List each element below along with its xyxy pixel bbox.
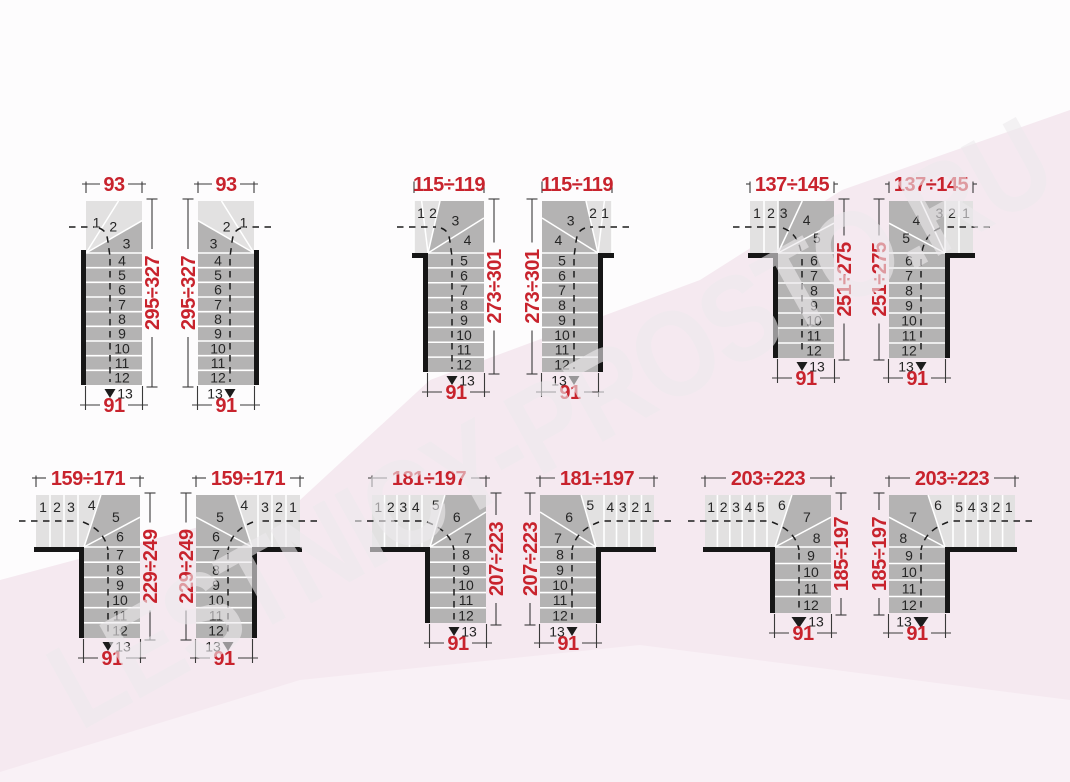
step-number: 3: [210, 236, 218, 252]
dim-width-label: 93: [215, 174, 237, 196]
step-number: 6: [460, 267, 468, 283]
step-number: 5: [214, 267, 222, 283]
step-number: 4: [214, 252, 222, 268]
dim-width-label: 137÷145: [755, 174, 830, 196]
stair-diagrams-canvas: 93295÷327911234567891011121393295÷327911…: [0, 0, 1070, 782]
dim-height-label: 273÷301: [484, 249, 506, 324]
step-number: 3: [567, 212, 575, 228]
dim-height-label: 295÷327: [142, 256, 164, 331]
step-number-last: 13: [207, 386, 223, 402]
step-number: 6: [558, 267, 566, 283]
step-number: 12: [552, 607, 568, 623]
step-number: 9: [558, 312, 566, 328]
step-number: 4: [968, 499, 976, 515]
step-number: 8: [460, 297, 468, 313]
dim-height-label: 185÷197: [869, 517, 891, 592]
step-number: 8: [556, 547, 564, 563]
step-number: 10: [901, 564, 917, 580]
step-number: 2: [223, 219, 231, 235]
step-number: 8: [214, 311, 222, 327]
step-number: 4: [240, 497, 248, 513]
step-number: 7: [558, 282, 566, 298]
step-number: 5: [757, 499, 765, 515]
step-number: 9: [462, 562, 470, 578]
step-number: 5: [112, 509, 120, 525]
step-number: 11: [211, 355, 226, 371]
step-number: 9: [460, 312, 468, 328]
step-number-last: 13: [461, 624, 477, 640]
step-number: 8: [558, 297, 566, 313]
step-number: 3: [452, 212, 460, 228]
step-number: 6: [118, 282, 126, 298]
dim-width-label: 203÷223: [731, 468, 806, 490]
step-number: 11: [804, 580, 819, 596]
step-number: 5: [216, 509, 224, 525]
step-number: 10: [458, 577, 474, 593]
dim-height-label: 185÷197: [831, 517, 853, 592]
step-number: 2: [429, 205, 437, 221]
dim-width-label: 115÷119: [413, 174, 485, 196]
step-number: 1: [601, 205, 609, 221]
step-number: 3: [67, 499, 75, 515]
dim-height-label: 207÷223: [520, 522, 542, 597]
step-number: 5: [558, 252, 566, 268]
step-number: 6: [934, 497, 942, 513]
dim-width-label: 115÷119: [541, 174, 613, 196]
step-number-last: 13: [808, 614, 824, 630]
step-number: 8: [899, 530, 907, 546]
step-number: 3: [123, 236, 131, 252]
step-number: 5: [118, 267, 126, 283]
step-number: 7: [116, 547, 124, 563]
step-number: 7: [214, 296, 222, 312]
step-number: 12: [803, 597, 819, 613]
step-number: 10: [456, 327, 472, 343]
step-number: 2: [53, 499, 61, 515]
step-number: 11: [115, 355, 130, 371]
step-number: 2: [720, 499, 728, 515]
step-number: 1: [753, 205, 761, 221]
step-number: 9: [807, 547, 815, 563]
step-number-last: 13: [896, 614, 912, 630]
step-number: 4: [555, 232, 563, 248]
step-number: 1: [417, 205, 425, 221]
step-number: 8: [118, 311, 126, 327]
step-number: 8: [116, 562, 124, 578]
step-number: 2: [993, 499, 1001, 515]
step-number: 10: [803, 564, 819, 580]
step-number: 6: [116, 529, 124, 545]
step-number: 10: [552, 577, 568, 593]
straight-flight: [198, 253, 254, 385]
step-number: 7: [909, 509, 917, 525]
step-number-last: 13: [549, 624, 565, 640]
step-number: 11: [902, 328, 917, 344]
step-number: 4: [118, 252, 126, 268]
dim-width-label: 203÷223: [915, 468, 990, 490]
step-number: 7: [554, 530, 562, 546]
step-number: 2: [589, 205, 597, 221]
step-number: 11: [902, 580, 917, 596]
step-number: 12: [456, 357, 472, 373]
step-number: 6: [778, 497, 786, 513]
step-number: 2: [631, 499, 639, 515]
step-number: 2: [109, 219, 117, 235]
step-number: 6: [214, 282, 222, 298]
step-number: 5: [460, 252, 468, 268]
step-number: 4: [745, 499, 753, 515]
step-number: 5: [586, 497, 594, 513]
step-number: 8: [813, 530, 821, 546]
step-number: 4: [88, 497, 96, 513]
step-number: 11: [457, 342, 472, 358]
step-number-last: 13: [809, 359, 825, 375]
step-number: 1: [644, 499, 652, 515]
step-number: 1: [39, 499, 47, 515]
dim-width-label: 159÷171: [51, 468, 126, 490]
step-number: 12: [458, 607, 474, 623]
step-number: 12: [901, 343, 917, 359]
step-number: 8: [462, 547, 470, 563]
step-number-last: 13: [898, 359, 914, 375]
dim-width-label: 93: [103, 174, 125, 196]
step-number: 1: [1005, 499, 1013, 515]
step-number: 1: [93, 215, 101, 231]
dim-width-label: 159÷171: [211, 468, 286, 490]
step-number: 9: [556, 562, 564, 578]
step-number: 9: [214, 326, 222, 342]
step-number: 10: [210, 340, 226, 356]
step-number: 4: [606, 499, 614, 515]
step-number: 7: [460, 282, 468, 298]
step-number: 7: [118, 296, 126, 312]
step-number: 3: [619, 499, 627, 515]
step-number: 6: [565, 509, 573, 525]
step-number: 7: [803, 509, 811, 525]
step-number: 9: [905, 547, 913, 563]
step-number: 9: [118, 326, 126, 342]
step-number: 5: [955, 499, 963, 515]
step-number: 2: [767, 205, 775, 221]
dim-height-label: 295÷327: [178, 256, 200, 331]
step-number: 12: [901, 597, 917, 613]
dim-height-label: 273÷301: [522, 249, 544, 324]
step-number: 11: [553, 592, 568, 608]
step-number: 1: [707, 499, 715, 515]
step-number: 3: [732, 499, 740, 515]
step-number: 10: [114, 340, 130, 356]
catalog-page: 93295÷327911234567891011121393295÷327911…: [0, 0, 1070, 782]
step-number: 11: [459, 592, 474, 608]
straight-flight: [540, 547, 596, 623]
step-number: 12: [210, 370, 226, 386]
step-number: 10: [901, 313, 917, 329]
step-number: 3: [980, 499, 988, 515]
step-number-last: 13: [117, 386, 133, 402]
step-number: 12: [114, 370, 130, 386]
step-number: 1: [240, 215, 248, 231]
step-number-last: 13: [459, 373, 475, 389]
step-number: 4: [464, 232, 472, 248]
